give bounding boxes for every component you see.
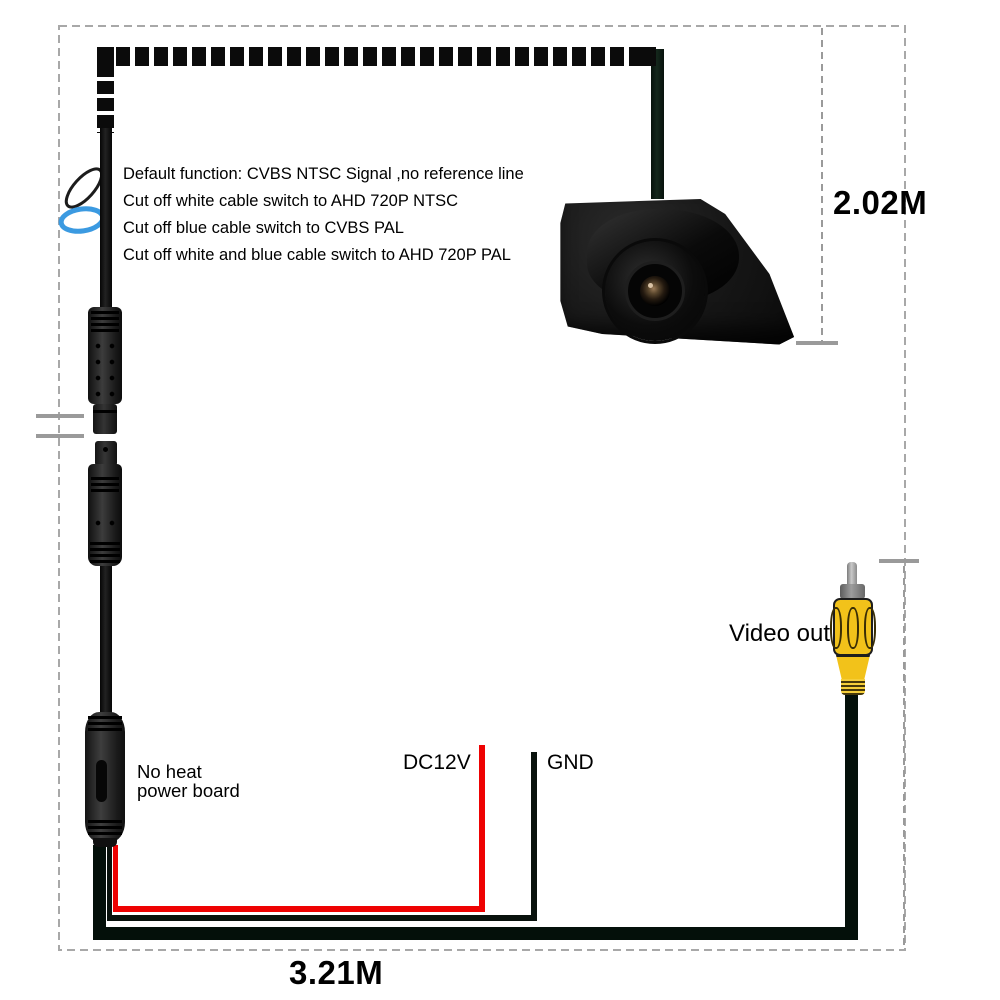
ground-wire-horizontal	[107, 915, 537, 921]
connector-upper-ribs	[91, 311, 119, 332]
video-wire-horizontal	[93, 927, 858, 940]
power-board-ribs-bottom	[88, 820, 122, 838]
rca-grip-left	[830, 607, 842, 649]
power-board-label-line1: No heat	[137, 762, 277, 781]
connector-lower-dots	[91, 515, 119, 531]
ground-wire-vertical-right	[531, 752, 537, 921]
connector-upper-dots	[91, 338, 119, 400]
video-wire-vertical-right	[845, 693, 858, 940]
video-wire-vertical-left	[93, 845, 106, 940]
corrugated-tube-corner	[97, 47, 114, 66]
dc12v-label: DC12V	[403, 751, 471, 775]
rearview-camera-image	[553, 196, 799, 346]
connector-lower-ribs-bottom	[90, 542, 120, 563]
main-cable-upper	[100, 128, 112, 310]
product-wiring-diagram: Default function: CVBS NTSC Signal ,no r…	[0, 0, 1000, 1000]
power-board-ribs-top	[88, 716, 122, 731]
camera-cable-length-label: 2.02M	[833, 184, 927, 222]
rca-strain-relief	[841, 679, 865, 695]
blue-wire-loop-icon	[60, 206, 105, 234]
power-board-label: No heat power board	[137, 762, 277, 800]
rca-grip-right	[864, 607, 876, 649]
rca-grip-middle	[847, 607, 859, 649]
signal-info-text: Default function: CVBS NTSC Signal ,no r…	[123, 161, 524, 269]
camera-lens-glint	[648, 283, 653, 288]
rca-pin	[847, 562, 857, 586]
connector-upper-groove	[93, 410, 117, 413]
connector-lower-ribs	[91, 477, 119, 494]
gnd-label: GND	[547, 751, 594, 775]
power-board-neck	[93, 838, 117, 847]
rca-collar	[840, 584, 865, 599]
power-wire-vertical-left	[113, 845, 118, 912]
corrugated-tube-end	[642, 47, 656, 66]
video-out-label: Video out	[729, 620, 830, 648]
ground-wire-vertical-left	[107, 845, 112, 921]
info-line-1: Default function: CVBS NTSC Signal ,no r…	[123, 161, 524, 188]
power-wire-vertical-right	[479, 745, 485, 912]
total-cable-length-label: 3.21M	[289, 954, 383, 992]
rca-connector-icon	[833, 598, 873, 656]
power-wire-horizontal	[113, 906, 485, 912]
connector-lower-pin-dot	[103, 447, 108, 452]
corrugated-tube-horizontal	[97, 47, 656, 66]
power-board-slot	[96, 760, 107, 802]
info-line-4: Cut off white and blue cable switch to A…	[123, 242, 524, 269]
info-line-2: Cut off white cable switch to AHD 720P N…	[123, 188, 524, 215]
info-line-3: Cut off blue cable switch to CVBS PAL	[123, 215, 524, 242]
camera-lens-glass	[640, 276, 670, 306]
main-cable-lower	[100, 564, 112, 716]
camera-drop-cable	[651, 49, 664, 199]
power-board-label-line2: power board	[137, 781, 277, 800]
